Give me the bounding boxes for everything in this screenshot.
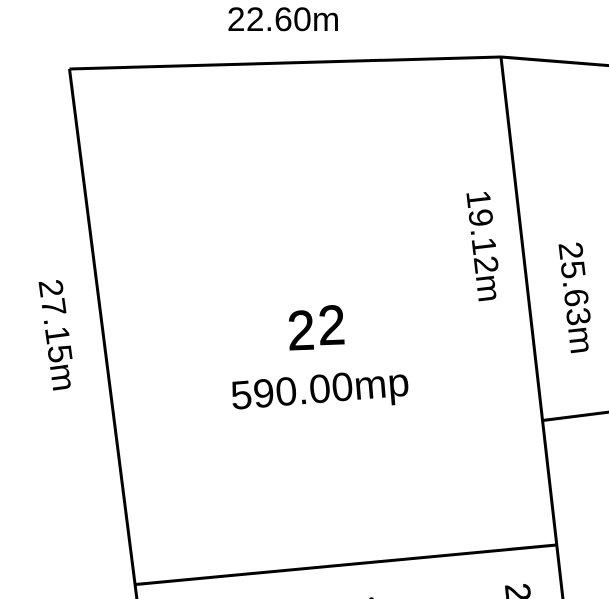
svg-text:2: 2 bbox=[286, 300, 317, 363]
svg-text:2: 2 bbox=[497, 581, 539, 599]
svg-text:22.60m: 22.60m bbox=[227, 1, 340, 39]
svg-text:2: 2 bbox=[316, 294, 347, 357]
